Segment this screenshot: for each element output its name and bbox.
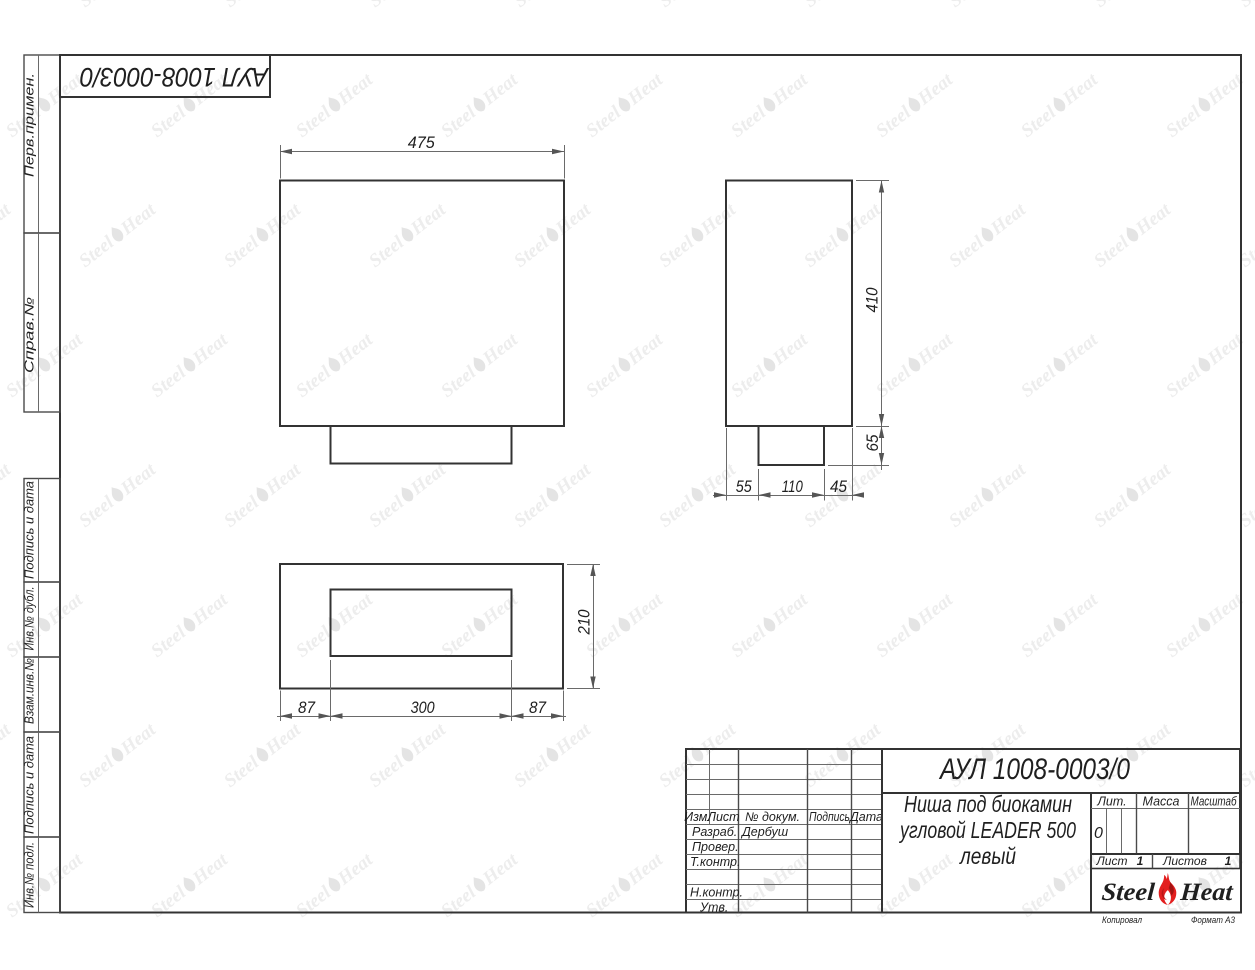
svg-text:Масса: Масса bbox=[1143, 795, 1180, 809]
svg-text:0: 0 bbox=[1094, 825, 1103, 842]
svg-text:Лит.: Лит. bbox=[1096, 795, 1126, 809]
svg-text:левый: левый bbox=[958, 843, 1016, 869]
svg-text:Heat: Heat bbox=[1179, 879, 1235, 906]
svg-text:Дата: Дата bbox=[848, 810, 883, 824]
svg-text:55: 55 bbox=[736, 477, 752, 496]
svg-text:87: 87 bbox=[529, 698, 546, 717]
svg-text:Копировал: Копировал bbox=[1102, 915, 1143, 926]
svg-text:Масштаб: Масштаб bbox=[1191, 795, 1238, 809]
svg-text:Провер.: Провер. bbox=[692, 840, 739, 854]
svg-text:210: 210 bbox=[575, 609, 594, 635]
svg-text:Дербуш: Дербуш bbox=[740, 825, 789, 839]
svg-text:300: 300 bbox=[411, 698, 435, 717]
svg-text:Н.контр.: Н.контр. bbox=[690, 886, 743, 900]
svg-text:410: 410 bbox=[863, 287, 882, 312]
svg-text:1: 1 bbox=[1225, 854, 1232, 868]
svg-text:87: 87 bbox=[298, 698, 315, 717]
svg-text:Лист: Лист bbox=[1096, 854, 1128, 868]
svg-text:45: 45 bbox=[830, 477, 847, 496]
svg-text:110: 110 bbox=[782, 477, 803, 496]
svg-text:Справ.№: Справ.№ bbox=[23, 296, 37, 373]
svg-text:Лист: Лист bbox=[706, 810, 739, 824]
svg-text:Перв.примен.: Перв.примен. bbox=[23, 73, 37, 177]
svg-text:№ докум.: № докум. bbox=[745, 810, 800, 824]
svg-text:Взам.инв.№: Взам.инв.№ bbox=[23, 658, 37, 724]
svg-text:475: 475 bbox=[408, 133, 436, 152]
svg-text:65: 65 bbox=[863, 434, 882, 451]
svg-text:Т.контр.: Т.контр. bbox=[690, 855, 740, 869]
svg-text:Ниша под биокамин: Ниша под биокамин bbox=[904, 791, 1072, 817]
svg-text:АУЛ 1008-0003/0: АУЛ 1008-0003/0 bbox=[80, 62, 270, 92]
svg-text:Разраб.: Разраб. bbox=[692, 825, 737, 839]
svg-text:Утв.: Утв. bbox=[699, 901, 728, 915]
svg-text:Инв.№ подл.: Инв.№ подл. bbox=[23, 842, 37, 908]
svg-text:АУЛ 1008-0003/0: АУЛ 1008-0003/0 bbox=[938, 753, 1130, 786]
svg-text:Подпись: Подпись bbox=[809, 810, 850, 824]
svg-text:Steel: Steel bbox=[1101, 879, 1156, 906]
svg-text:Подпись и дата: Подпись и дата bbox=[23, 736, 37, 834]
svg-text:Листов: Листов bbox=[1162, 854, 1207, 868]
svg-text:Подпись и дата: Подпись и дата bbox=[23, 481, 37, 579]
svg-text:Формат А3: Формат А3 bbox=[1191, 915, 1236, 926]
svg-text:Инв.№ дубл.: Инв.№ дубл. bbox=[23, 587, 37, 651]
svg-text:1: 1 bbox=[1137, 854, 1144, 868]
svg-text:угловой LEADER 500: угловой LEADER 500 bbox=[898, 817, 1076, 843]
